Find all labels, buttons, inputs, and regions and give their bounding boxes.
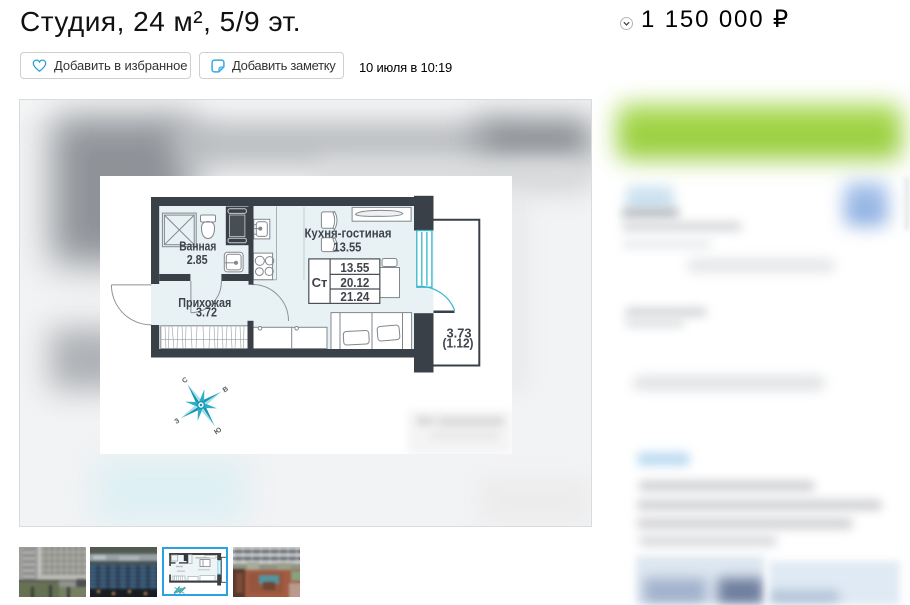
svg-text:21.24: 21.24 <box>340 289 370 304</box>
svg-text:Ст: Ст <box>312 275 328 290</box>
svg-text:3.72: 3.72 <box>196 305 217 320</box>
svg-text:Ю: Ю <box>213 427 223 437</box>
svg-text:20.12: 20.12 <box>340 275 369 290</box>
svg-text:В: В <box>222 386 230 395</box>
svg-text:13.55: 13.55 <box>333 239 361 254</box>
svg-text:(1.12): (1.12) <box>443 336 474 351</box>
svg-text:С: С <box>181 376 189 385</box>
svg-text:З: З <box>173 417 181 426</box>
svg-text:Кухня-гостиная: Кухня-гостиная <box>305 226 392 241</box>
svg-text:13.55: 13.55 <box>340 260 369 275</box>
svg-text:2.85: 2.85 <box>187 252 208 267</box>
